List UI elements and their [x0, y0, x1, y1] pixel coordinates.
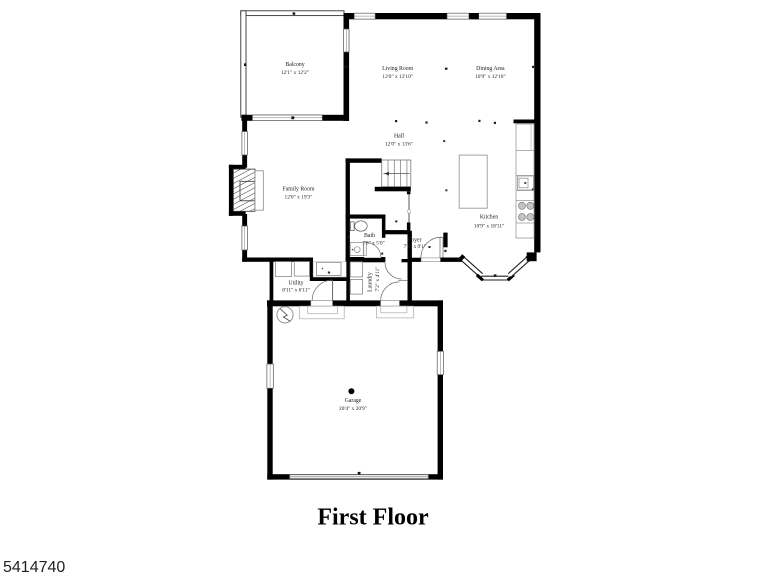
svg-text:12'0" x 19'3": 12'0" x 19'3" — [285, 195, 313, 201]
svg-text:Bath: Bath — [364, 233, 375, 239]
svg-text:Laundry: Laundry — [368, 272, 374, 292]
svg-text:10'9" x 18'11": 10'9" x 18'11" — [474, 224, 504, 230]
svg-text:7'0" x 9'1": 7'0" x 9'1" — [404, 244, 427, 250]
svg-text:First Floor: First Floor — [317, 505, 429, 531]
svg-text:12'0" x 13'6": 12'0" x 13'6" — [385, 141, 413, 147]
svg-text:Hall: Hall — [394, 134, 404, 140]
svg-text:7'8" x 5'0": 7'8" x 5'0" — [362, 241, 385, 247]
svg-text:5414740: 5414740 — [3, 559, 65, 576]
svg-text:Foyer: Foyer — [408, 238, 422, 244]
svg-text:12'1" x 12'2": 12'1" x 12'2" — [281, 70, 309, 76]
svg-text:10'9" x 12'10": 10'9" x 12'10" — [475, 74, 506, 80]
svg-text:Family Room: Family Room — [282, 187, 315, 193]
svg-text:Kitchen: Kitchen — [480, 214, 498, 220]
svg-text:12'0" x 12'10": 12'0" x 12'10" — [382, 74, 413, 80]
svg-text:7'2" x 4'11": 7'2" x 4'11" — [375, 266, 381, 291]
svg-text:Dining Area: Dining Area — [476, 66, 505, 72]
svg-text:20'4" x 20'9": 20'4" x 20'9" — [339, 406, 367, 412]
svg-text:Balcony: Balcony — [285, 62, 304, 68]
svg-text:Garage: Garage — [345, 398, 362, 404]
svg-text:Living Room: Living Room — [382, 66, 414, 72]
svg-text:8'11" x 6'11": 8'11" x 6'11" — [282, 288, 310, 294]
svg-text:Utility: Utility — [288, 280, 303, 286]
